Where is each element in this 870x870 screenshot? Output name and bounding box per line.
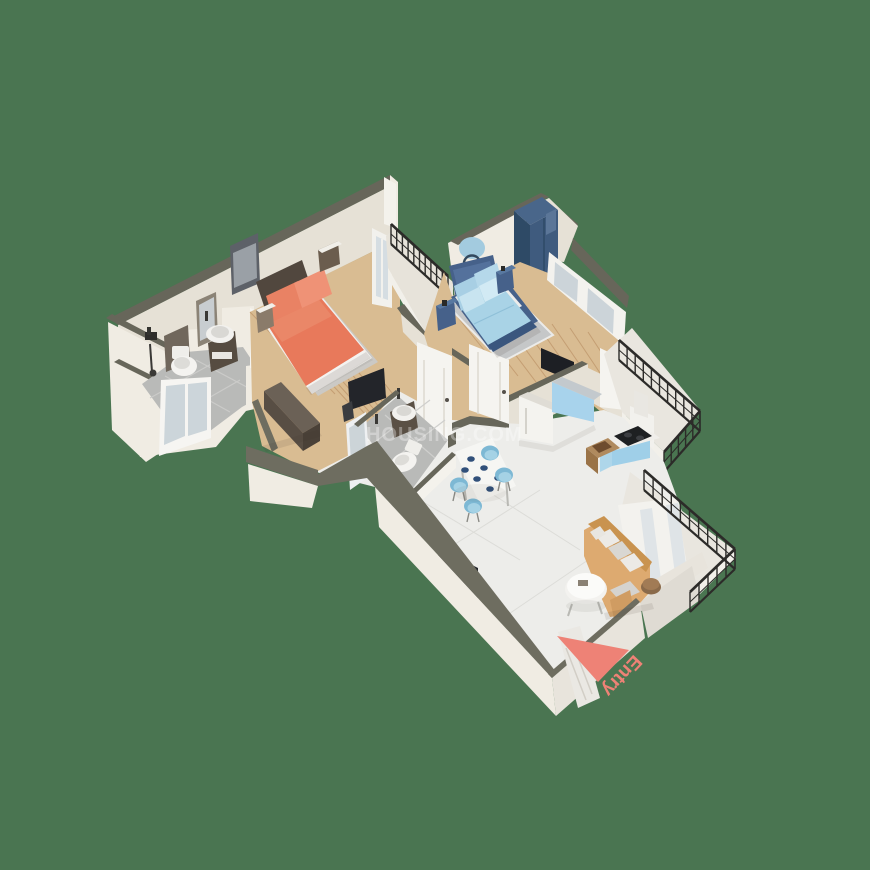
svg-text:HOUSING.COM: HOUSING.COM [366, 424, 523, 446]
